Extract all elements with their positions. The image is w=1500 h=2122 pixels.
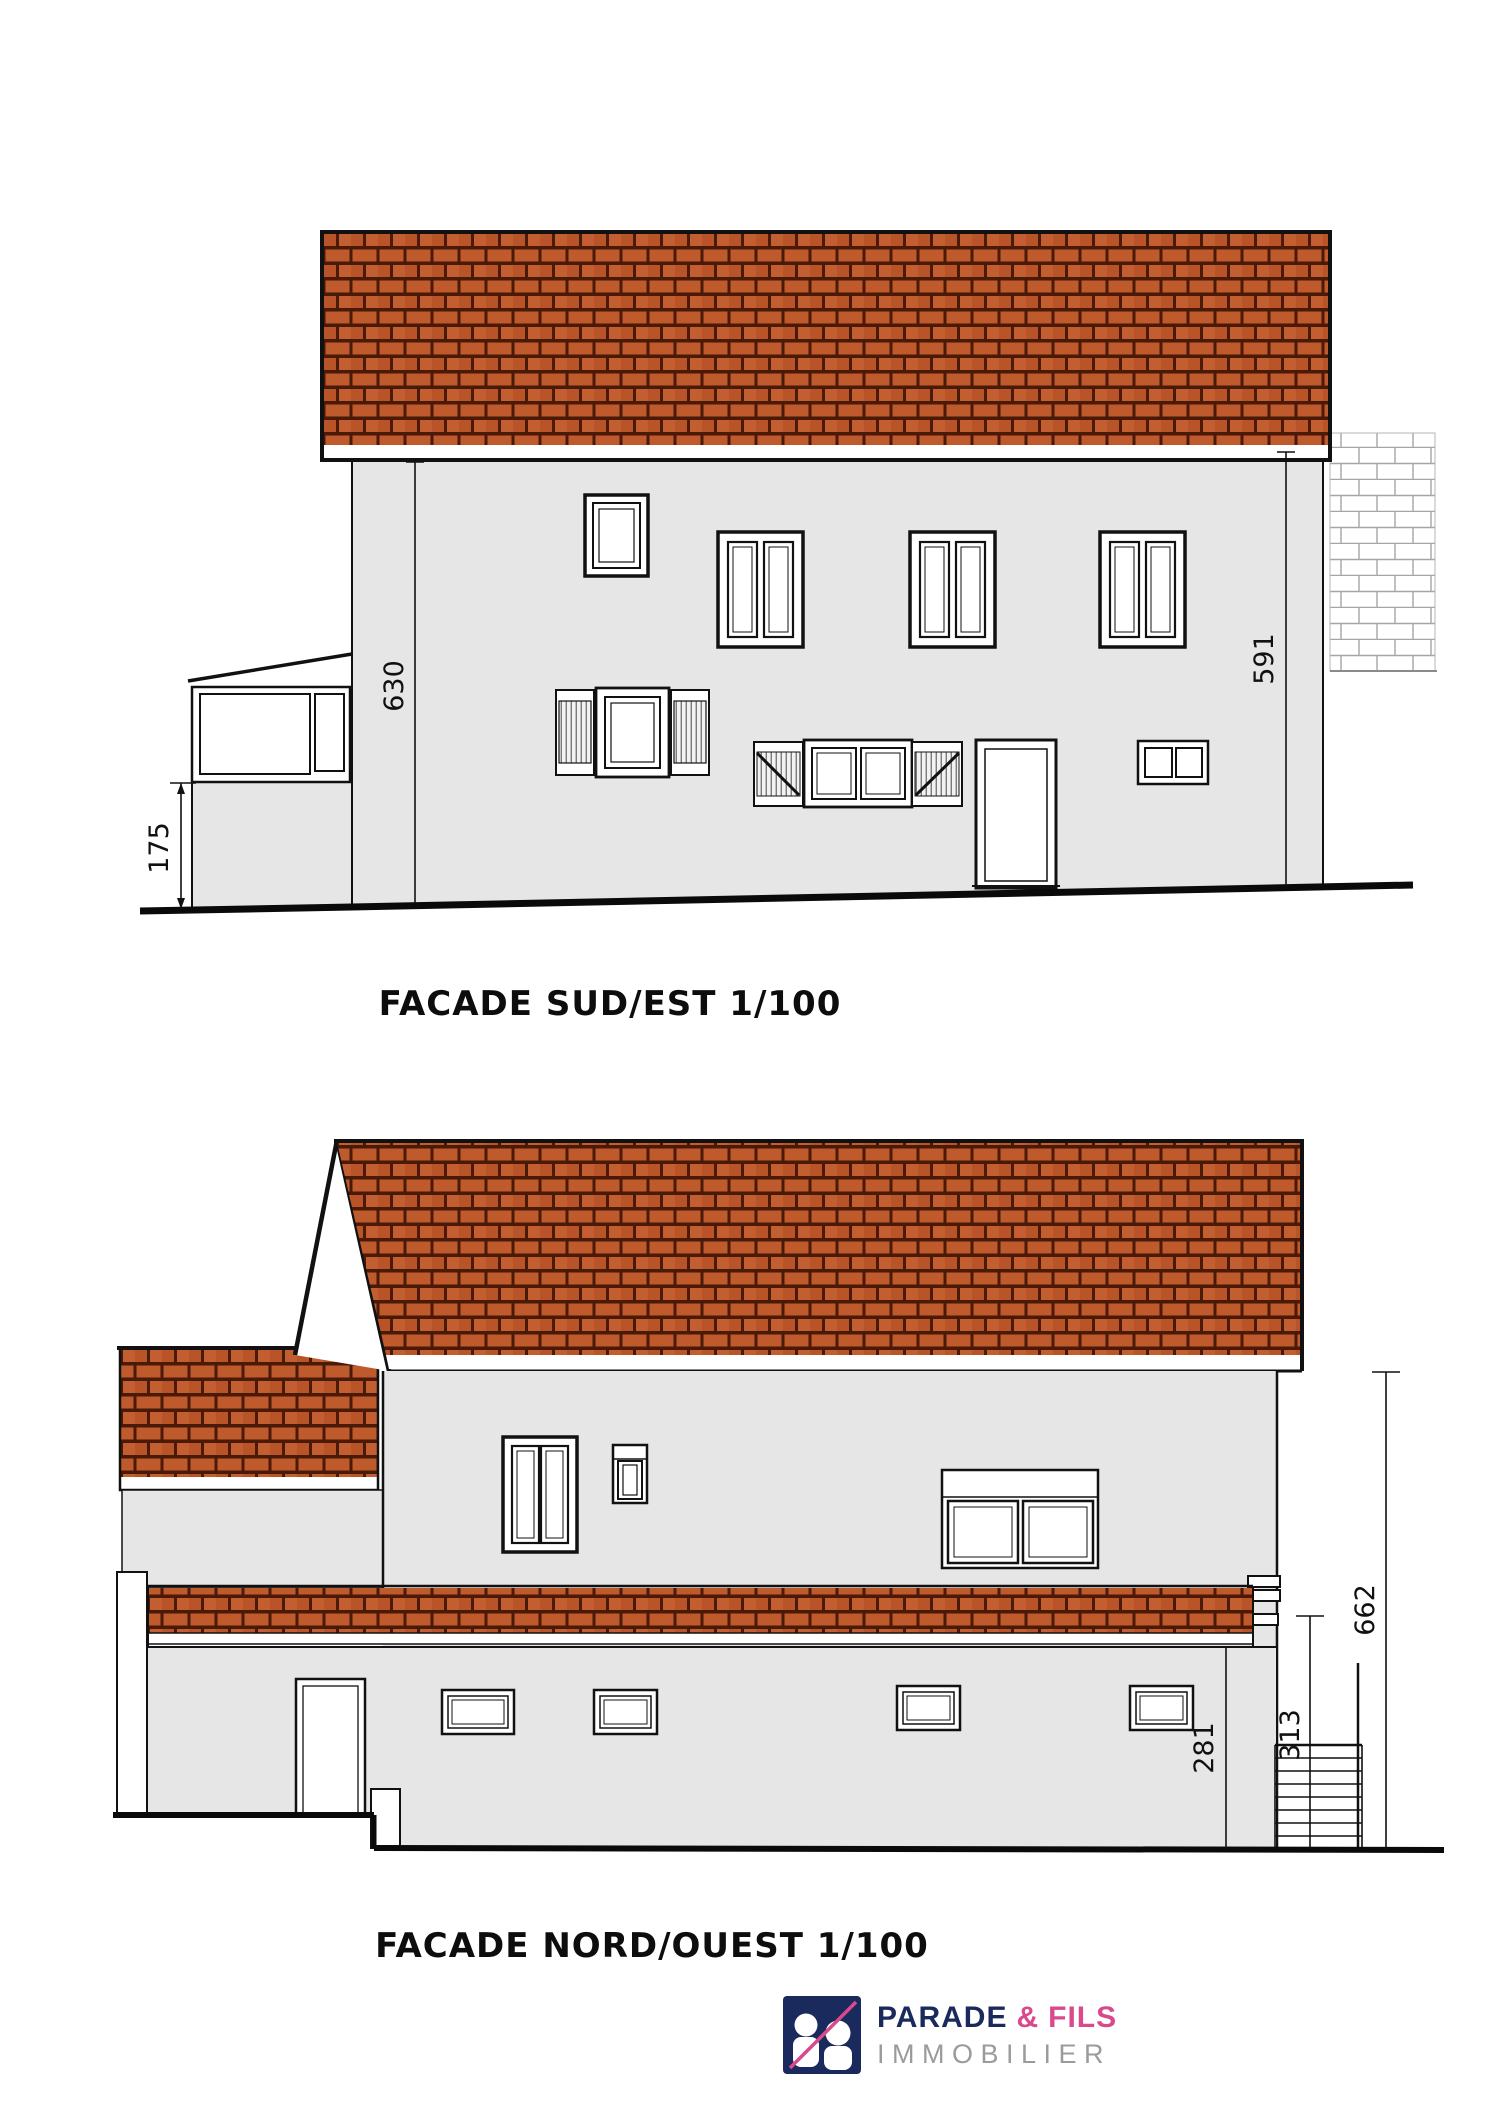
logo-tagline: IMMOBILIER xyxy=(877,2039,1111,2069)
wide-window xyxy=(942,1470,1098,1568)
annex-roof xyxy=(117,1348,381,1490)
title-facade-nord-ouest: FACADE NORD/OUEST 1/100 xyxy=(375,1926,929,1966)
upper-casement-window xyxy=(503,1437,577,1552)
elevation-sheet: 630 591 175 FACADE SUD/EST 1/100 xyxy=(0,0,1500,2122)
veranda xyxy=(188,654,352,910)
dim-label-313: 313 xyxy=(1275,1709,1306,1761)
roof-tiles xyxy=(322,232,1330,445)
main-roof xyxy=(322,232,1330,460)
title-facade-sud-est: FACADE SUD/EST 1/100 xyxy=(379,984,842,1024)
logo-name-secondary: FILS xyxy=(1048,2001,1117,2034)
casement-window xyxy=(1100,532,1185,647)
banded-window-with-shutters xyxy=(754,740,962,807)
veranda-roof-slope xyxy=(188,654,352,681)
facade-drawings: 630 591 175 FACADE SUD/EST 1/100 xyxy=(0,0,1500,2122)
logo-icon xyxy=(783,1996,861,2074)
annex-door xyxy=(296,1679,365,1815)
logo-wordmark: PARADE&FILS xyxy=(877,2001,1117,2034)
annex-upper-wall xyxy=(122,1490,383,1588)
basement-window xyxy=(1130,1686,1193,1730)
basement-window xyxy=(442,1690,514,1734)
small-double-window xyxy=(1138,741,1208,784)
casement-window xyxy=(718,532,803,647)
basement-window xyxy=(897,1686,960,1730)
veranda-wall xyxy=(192,782,352,910)
logo-name-primary: PARADE xyxy=(877,2001,1007,2034)
basement-window xyxy=(594,1690,657,1734)
main-wall xyxy=(352,461,1323,906)
dimension-175: 175 xyxy=(144,783,196,909)
facade-sud-est: 630 591 175 FACADE SUD/EST 1/100 xyxy=(140,232,1437,1024)
logo-ampersand: & xyxy=(1016,2001,1039,2034)
dim-label-175: 175 xyxy=(144,822,175,874)
upper-small-window xyxy=(613,1445,647,1503)
roof-eave xyxy=(322,445,1330,460)
main-roof xyxy=(334,1141,1304,1371)
wall-corner-strip xyxy=(117,1572,147,1815)
dimension-313: 313 xyxy=(1275,1616,1324,1849)
shuttered-window xyxy=(556,688,709,777)
dim-label-662: 662 xyxy=(1350,1584,1381,1636)
facade-nord-ouest: 281 313 662 FACADE NORD/OUEST 1/100 xyxy=(113,1140,1444,1966)
small-window xyxy=(585,495,648,576)
veranda-window-narrow-pane xyxy=(315,694,344,771)
lower-roof-band xyxy=(148,1586,1253,1646)
dim-label-630: 630 xyxy=(379,660,410,712)
dim-label-281: 281 xyxy=(1189,1722,1220,1774)
veranda-window-pane xyxy=(200,694,310,774)
background-masonry xyxy=(1330,433,1435,671)
entrance-door xyxy=(972,740,1060,888)
agency-logo: PARADE&FILS IMMOBILIER xyxy=(783,1996,1117,2074)
casement-window xyxy=(910,532,995,647)
dim-label-591: 591 xyxy=(1249,633,1280,685)
